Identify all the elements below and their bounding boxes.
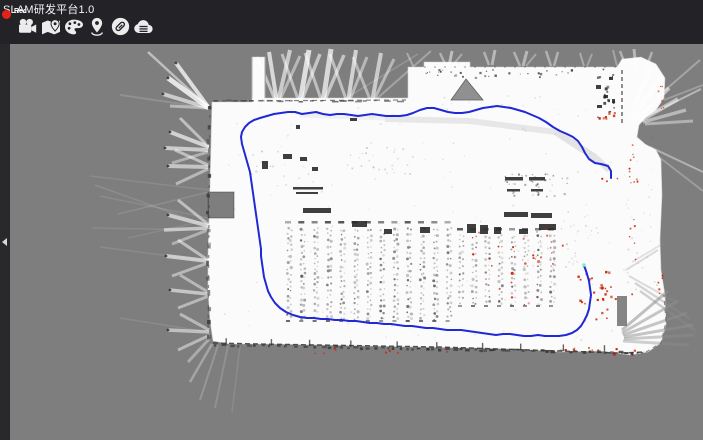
- slam-app-window: SLAM研发平台1.0 Rec: [0, 0, 703, 440]
- open-video-button[interactable]: [18, 16, 38, 37]
- map-location-icon: [41, 18, 61, 36]
- left-panel-strip: [0, 44, 10, 440]
- locate-tool-button[interactable]: [87, 16, 107, 37]
- cloud-layers-icon: [133, 18, 154, 35]
- slam-map-canvas[interactable]: [10, 44, 703, 440]
- toolbar: [18, 16, 153, 37]
- panel-collapse-arrow-icon[interactable]: [2, 238, 7, 246]
- map-viewport[interactable]: [10, 44, 703, 440]
- video-camera-icon: [18, 18, 38, 36]
- record-label: Rec: [14, 8, 27, 15]
- link-tool-button[interactable]: [110, 16, 130, 37]
- cloud-tool-button[interactable]: [133, 16, 153, 37]
- record-dot-icon: [2, 10, 11, 19]
- link-icon: [111, 17, 130, 36]
- app-header: SLAM研发平台1.0 Rec: [0, 0, 703, 44]
- location-pin-icon: [88, 17, 106, 36]
- map-tool-button[interactable]: [41, 16, 61, 37]
- palette-icon: [64, 18, 84, 36]
- palette-tool-button[interactable]: [64, 16, 84, 37]
